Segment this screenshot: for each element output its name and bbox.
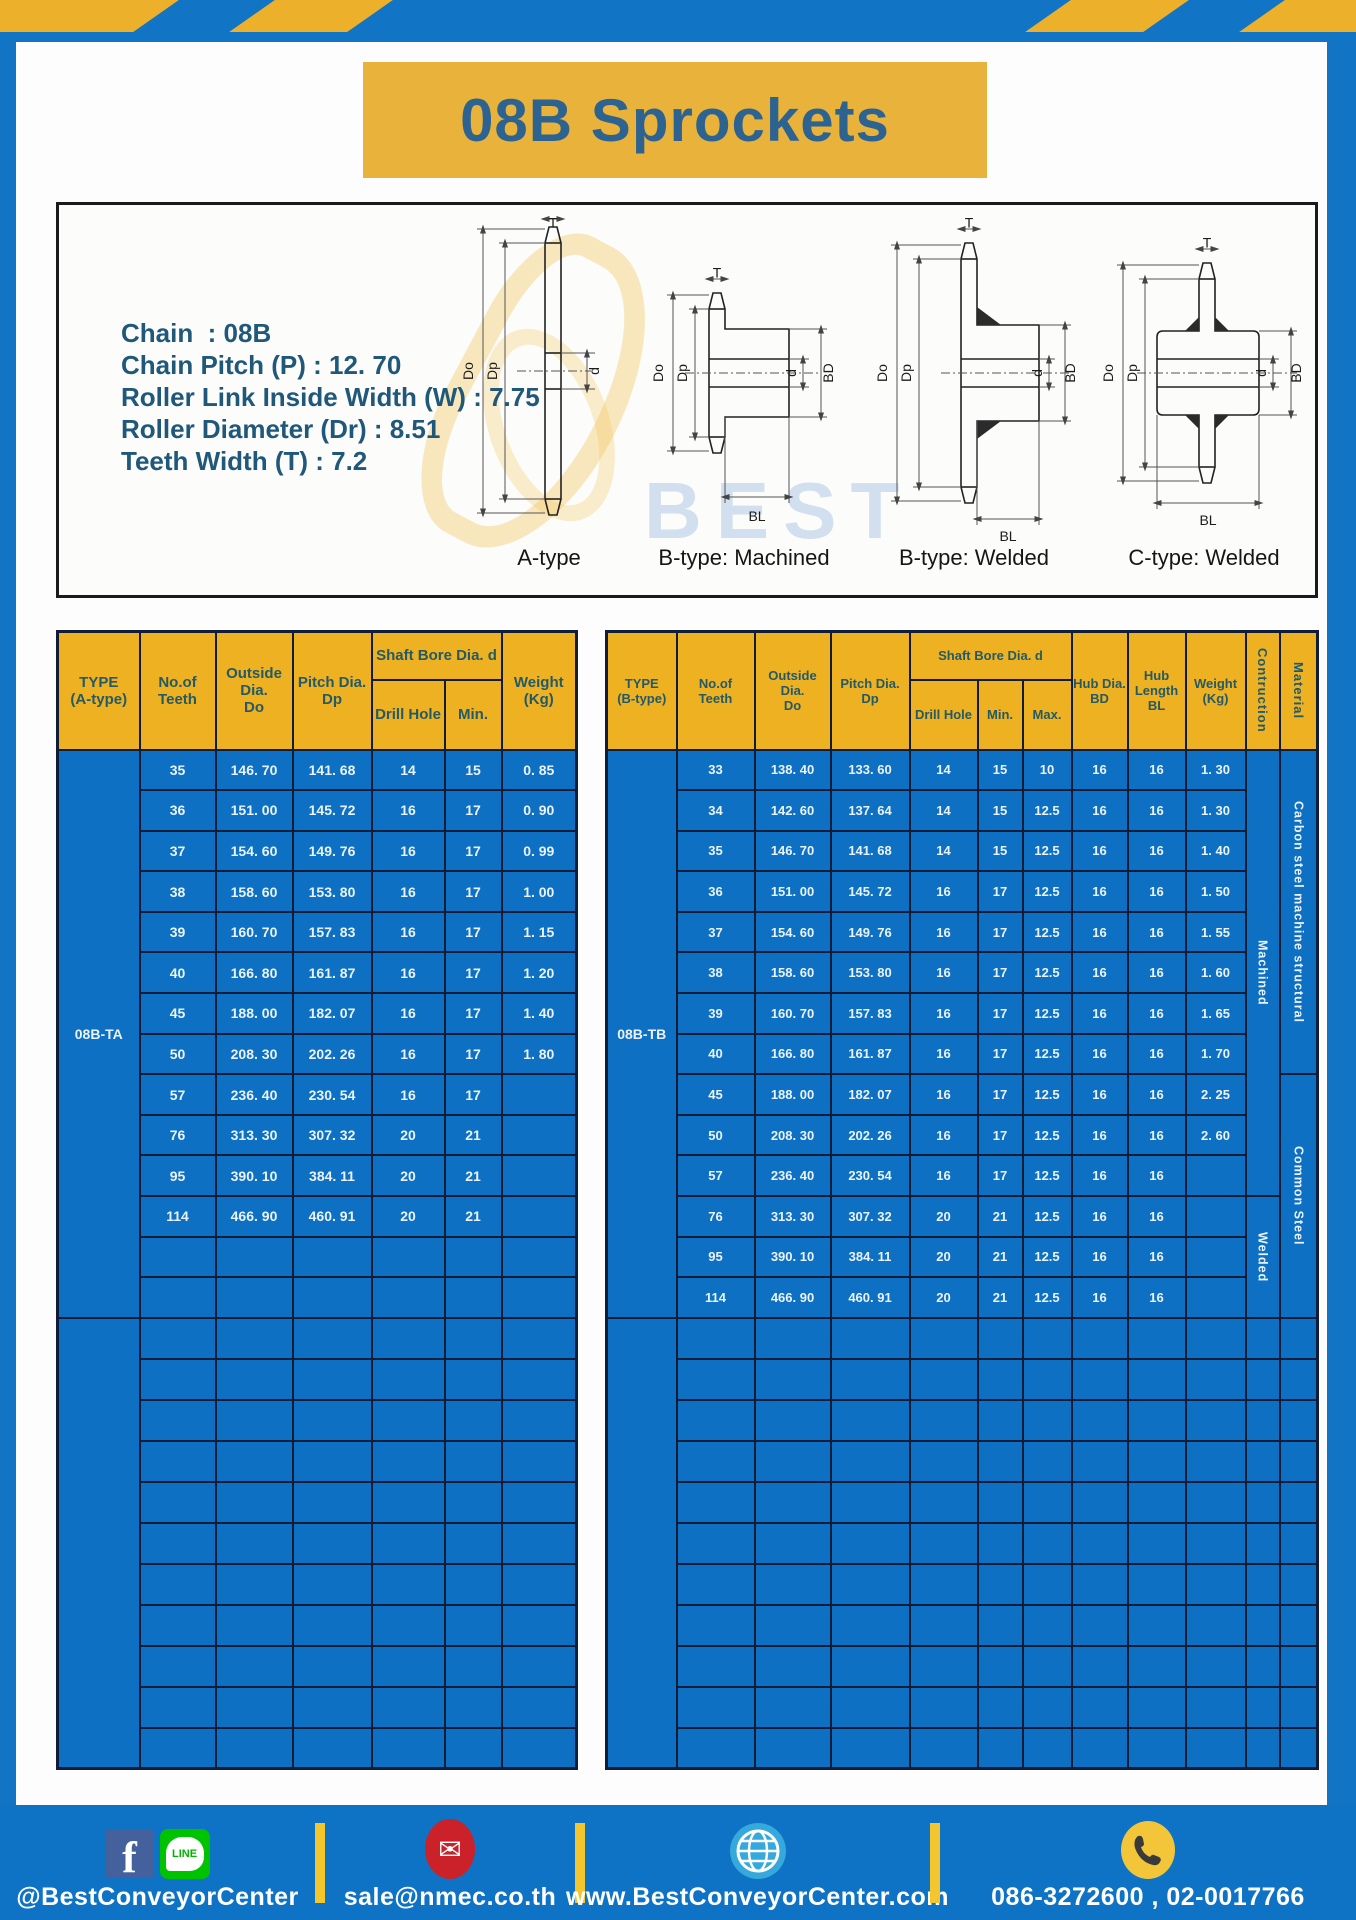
table-cell: [677, 1482, 755, 1523]
table-cell: 16: [1072, 952, 1128, 993]
table-cell: 1. 20: [502, 952, 577, 993]
table-b-row: 39160. 70157. 83161712.516161. 65: [607, 993, 1318, 1034]
table-cell: 35: [140, 750, 216, 791]
table-cell: [831, 1318, 910, 1359]
table-cell: 460. 91: [293, 1196, 372, 1237]
table-cell: [502, 1237, 577, 1278]
table-b-row: 37154. 60149. 76161712.516161. 55: [607, 912, 1318, 953]
table-cell: [978, 1605, 1023, 1646]
table-cell: [1280, 1646, 1318, 1687]
table-cell: 16: [1128, 993, 1186, 1034]
table-cell: [502, 1074, 577, 1115]
footer-separator: [930, 1823, 940, 1903]
table-cell: 21: [978, 1196, 1023, 1237]
col-header-weight: Weight (Kg): [502, 632, 577, 750]
table-cell: 158. 60: [755, 952, 831, 993]
table-cell: [502, 1277, 577, 1318]
table-cell: [502, 1687, 577, 1728]
table-b-row: 38158. 60153. 80161712.516161. 60: [607, 952, 1318, 993]
table-cell: 20: [910, 1237, 978, 1278]
table-cell: [1186, 1523, 1246, 1564]
table-08b-tb: TYPE (B-type) No.of Teeth Outside Dia. D…: [605, 630, 1319, 1770]
table-cell: [1246, 1687, 1280, 1728]
table-cell: 313. 30: [755, 1196, 831, 1237]
table-b-row: 45188. 00182. 07161712.516162. 25Common …: [607, 1074, 1318, 1115]
table-cell: 20: [910, 1277, 978, 1318]
table-cell: 17: [445, 1074, 502, 1115]
table-cell: [502, 1196, 577, 1237]
table-cell: [1186, 1646, 1246, 1687]
table-cell: [1280, 1318, 1318, 1359]
dim-label-d: d: [1253, 369, 1269, 377]
table-cell: [216, 1441, 293, 1482]
table-cell: 12.5: [1023, 993, 1072, 1034]
table-cell: 16: [1072, 1155, 1128, 1196]
table-a-empty-row: [58, 1318, 577, 1359]
table-cell: [502, 1400, 577, 1441]
table-cell: [1246, 1359, 1280, 1400]
table-cell: [1128, 1564, 1186, 1605]
table-cell: [293, 1728, 372, 1769]
table-cell: 12.5: [1023, 790, 1072, 831]
table-cell: [216, 1728, 293, 1769]
table-b-empty-row: [607, 1523, 1318, 1564]
col-header-construction: Contruction: [1246, 632, 1280, 750]
table-cell: [1023, 1564, 1072, 1605]
table-cell: 384. 11: [293, 1155, 372, 1196]
table-cell: [1128, 1605, 1186, 1646]
table-cell: 16: [910, 1074, 978, 1115]
table-cell: 12.5: [1023, 952, 1072, 993]
dim-label-bl: BL: [748, 508, 765, 524]
table-cell: 16: [372, 1034, 445, 1075]
dim-label-d: d: [783, 369, 799, 377]
table-cell: [1072, 1687, 1128, 1728]
social-handle-text[interactable]: @BestConveyorCenter: [16, 1883, 299, 1912]
table-cell: [293, 1687, 372, 1728]
table-cell: [1246, 1318, 1280, 1359]
b-type-welded-figure: T Do Dp d BD BL B-type: Welded: [869, 213, 1079, 571]
table-b-row: 40166. 80161. 87161712.516161. 70: [607, 1034, 1318, 1075]
table-cell: 0. 85: [502, 750, 577, 791]
table-cell: 21: [445, 1115, 502, 1156]
col-header-drill-hole: Drill Hole: [372, 680, 445, 750]
table-cell: [216, 1359, 293, 1400]
table-cell: [445, 1400, 502, 1441]
table-cell: [1186, 1482, 1246, 1523]
table-cell: [1072, 1359, 1128, 1400]
col-header-outside: Outside Dia. Do: [216, 632, 293, 750]
title-banner: 08B Sprockets: [363, 62, 987, 178]
table-cell: 14: [372, 750, 445, 791]
table-cell: 16: [1128, 750, 1186, 791]
table-cell: [831, 1564, 910, 1605]
table-cell: 208. 30: [755, 1115, 831, 1156]
table-b-empty-row: [607, 1318, 1318, 1359]
table-b-empty-row: [607, 1646, 1318, 1687]
table-cell: 230. 54: [293, 1074, 372, 1115]
col-header-min: Min.: [978, 680, 1023, 750]
table-cell: [978, 1482, 1023, 1523]
table-cell: [831, 1646, 910, 1687]
figure-caption: C-type: Welded: [1099, 545, 1309, 571]
table-cell: 153. 80: [293, 871, 372, 912]
table-cell: 1. 30: [1186, 790, 1246, 831]
table-cell: 45: [677, 1074, 755, 1115]
table-cell: [677, 1400, 755, 1441]
table-cell: 161. 87: [293, 952, 372, 993]
table-cell: [677, 1523, 755, 1564]
hazard-stripe: [229, 0, 393, 32]
table-cell: [140, 1564, 216, 1605]
col-header-type: TYPE (B-type): [607, 632, 677, 750]
table-cell: [831, 1728, 910, 1769]
figure-caption: B-type: Welded: [869, 545, 1079, 571]
table-cell: [910, 1359, 978, 1400]
table-cell: 15: [978, 790, 1023, 831]
table-cell: [140, 1237, 216, 1278]
table-cell: [978, 1441, 1023, 1482]
footer-contact-bar: f LINE @BestConveyorCenter ✉ sale@nmec.c…: [0, 1805, 1356, 1920]
table-cell: [502, 1482, 577, 1523]
table-cell: [372, 1728, 445, 1769]
table-cell: 12.5: [1023, 1034, 1072, 1075]
phone-icon[interactable]: [1121, 1821, 1175, 1879]
footer-website-group: www.BestConveyorCenter.com: [585, 1805, 930, 1920]
table-cell: [445, 1482, 502, 1523]
line-bubble: LINE: [166, 1837, 204, 1871]
dim-label-t: T: [549, 214, 558, 230]
footer-separator: [315, 1823, 325, 1903]
dim-label-bd: BD: [820, 363, 836, 382]
table-cell: [1128, 1728, 1186, 1769]
table-cell: 16: [910, 1034, 978, 1075]
table-cell: 145. 72: [293, 790, 372, 831]
table-cell: [1128, 1400, 1186, 1441]
col-header-pitch: Pitch Dia. Dp: [831, 632, 910, 750]
table-b-empty-row: [607, 1605, 1318, 1646]
table-cell: [831, 1441, 910, 1482]
table-cell: [1072, 1564, 1128, 1605]
dim-label-do: Do: [1100, 364, 1116, 382]
table-cell: [1023, 1441, 1072, 1482]
table-cell: 17: [445, 871, 502, 912]
table-cell: 166. 80: [755, 1034, 831, 1075]
table-cell: [216, 1400, 293, 1441]
col-header-pitch: Pitch Dia. Dp: [293, 632, 372, 750]
dim-label-dp: Dp: [898, 364, 914, 382]
table-cell: [372, 1646, 445, 1687]
table-cell: 1. 30: [1186, 750, 1246, 791]
table-cell: [1023, 1318, 1072, 1359]
table-cell: 17: [445, 1034, 502, 1075]
table-cell: 137. 64: [831, 790, 910, 831]
type-cell: 08B-TA: [58, 750, 140, 1318]
email-icon[interactable]: ✉: [425, 1819, 475, 1879]
table-cell: [1186, 1687, 1246, 1728]
table-cell: 154. 60: [216, 831, 293, 872]
table-cell: [677, 1359, 755, 1400]
table-cell: [1128, 1646, 1186, 1687]
table-cell: 460. 91: [831, 1277, 910, 1318]
table-cell: [755, 1564, 831, 1605]
dim-label-bd: BD: [1288, 363, 1304, 382]
table-cell: [755, 1523, 831, 1564]
table-cell: [910, 1728, 978, 1769]
table-cell: [910, 1646, 978, 1687]
table-cell: [502, 1318, 577, 1359]
table-cell: 16: [1128, 1277, 1186, 1318]
table-cell: [1186, 1564, 1246, 1605]
table-cell: [293, 1482, 372, 1523]
col-header-weight: Weight (Kg): [1186, 632, 1246, 750]
table-cell: [502, 1155, 577, 1196]
table-cell: [1246, 1523, 1280, 1564]
figure-caption: A-type: [459, 545, 639, 571]
table-cell: [1023, 1400, 1072, 1441]
email-text[interactable]: sale@nmec.co.th: [344, 1883, 557, 1912]
table-cell: 16: [1128, 1237, 1186, 1278]
table-cell: [1246, 1400, 1280, 1441]
table-cell: 17: [978, 1034, 1023, 1075]
table-cell: 1. 15: [502, 912, 577, 953]
table-cell: 1. 50: [1186, 871, 1246, 912]
col-header-type: TYPE (A-type): [58, 632, 140, 750]
table-cell: [1072, 1646, 1128, 1687]
table-cell: 20: [372, 1196, 445, 1237]
table-cell: [1128, 1687, 1186, 1728]
table-cell: 21: [445, 1196, 502, 1237]
table-cell: [293, 1523, 372, 1564]
table-b-empty-row: [607, 1728, 1318, 1769]
col-header-material: Material: [1280, 632, 1318, 750]
table-a-wrapper: TYPE (A-type) No.of Teeth Outside Dia. D…: [56, 630, 575, 1770]
table-cell: 17: [445, 993, 502, 1034]
col-header-drill-hole: Drill Hole: [910, 680, 978, 750]
table-cell: [755, 1728, 831, 1769]
table-cell: [140, 1359, 216, 1400]
type-cell: [607, 1318, 677, 1769]
table-b-wrapper: TYPE (B-type) No.of Teeth Outside Dia. D…: [605, 630, 1316, 1770]
table-cell: 1. 40: [502, 993, 577, 1034]
table-cell: 17: [445, 831, 502, 872]
globe-icon[interactable]: [730, 1823, 786, 1879]
table-cell: [1128, 1318, 1186, 1359]
table-cell: [1246, 1441, 1280, 1482]
table-cell: [216, 1605, 293, 1646]
table-cell: 16: [372, 1074, 445, 1115]
table-cell: [978, 1728, 1023, 1769]
table-cell: 166. 80: [216, 952, 293, 993]
table-cell: 12.5: [1023, 871, 1072, 912]
table-cell: [1246, 1646, 1280, 1687]
table-cell: [140, 1646, 216, 1687]
table-cell: 390. 10: [755, 1237, 831, 1278]
table-cell: 17: [445, 790, 502, 831]
table-cell: [445, 1237, 502, 1278]
table-cell: 12.5: [1023, 1074, 1072, 1115]
table-cell: [1280, 1523, 1318, 1564]
table-cell: 160. 70: [755, 993, 831, 1034]
table-cell: 182. 07: [831, 1074, 910, 1115]
table-cell: 21: [978, 1277, 1023, 1318]
table-cell: [1280, 1400, 1318, 1441]
table-cell: 57: [677, 1155, 755, 1196]
table-cell: 157. 83: [293, 912, 372, 953]
table-cell: 37: [677, 912, 755, 953]
table-cell: [140, 1441, 216, 1482]
phone-text[interactable]: 086-3272600 , 02-0017766: [991, 1883, 1305, 1912]
construction-cell: Welded: [1246, 1196, 1280, 1318]
table-cell: 16: [910, 1115, 978, 1156]
facebook-letter: f: [122, 1838, 137, 1878]
table-cell: 2. 60: [1186, 1115, 1246, 1156]
table-cell: [1072, 1482, 1128, 1523]
dim-label-bl: BL: [1199, 512, 1216, 528]
envelope-glyph: ✉: [438, 1833, 461, 1866]
footer-social-group: f LINE @BestConveyorCenter: [0, 1805, 315, 1920]
table-cell: 236. 40: [755, 1155, 831, 1196]
line-icon[interactable]: LINE: [160, 1829, 210, 1879]
table-b-empty-row: [607, 1482, 1318, 1523]
table-cell: 16: [1072, 750, 1128, 791]
table-cell: [372, 1441, 445, 1482]
table-cell: 182. 07: [293, 993, 372, 1034]
table-b-empty-row: [607, 1687, 1318, 1728]
table-cell: 149. 76: [293, 831, 372, 872]
table-cell: 33: [677, 750, 755, 791]
table-cell: [755, 1605, 831, 1646]
col-header-teeth: No.of Teeth: [677, 632, 755, 750]
table-cell: [1280, 1359, 1318, 1400]
table-cell: 17: [445, 952, 502, 993]
table-cell: 466. 90: [216, 1196, 293, 1237]
table-cell: [140, 1318, 216, 1359]
table-cell: 133. 60: [831, 750, 910, 791]
table-cell: 142. 60: [755, 790, 831, 831]
table-cell: [1246, 1605, 1280, 1646]
table-cell: 95: [140, 1155, 216, 1196]
table-a-row: 08B-TA35146. 70141. 6814150. 85: [58, 750, 577, 791]
table-cell: [1186, 1400, 1246, 1441]
table-cell: [1246, 1482, 1280, 1523]
table-cell: 1. 00: [502, 871, 577, 912]
table-cell: [140, 1728, 216, 1769]
col-header-teeth: No.of Teeth: [140, 632, 216, 750]
table-cell: 1. 40: [1186, 831, 1246, 872]
col-header-hub-length: Hub Length BL: [1128, 632, 1186, 750]
table-cell: 154. 60: [755, 912, 831, 953]
table-cell: 16: [1128, 1115, 1186, 1156]
table-cell: [1280, 1564, 1318, 1605]
table-cell: [1128, 1523, 1186, 1564]
table-cell: [978, 1564, 1023, 1605]
table-cell: 1. 70: [1186, 1034, 1246, 1075]
table-cell: 141. 68: [293, 750, 372, 791]
table-cell: [1023, 1687, 1072, 1728]
table-cell: 160. 70: [216, 912, 293, 953]
table-cell: 16: [372, 871, 445, 912]
table-cell: 40: [677, 1034, 755, 1075]
table-cell: [1186, 1728, 1246, 1769]
table-cell: 384. 11: [831, 1237, 910, 1278]
table-cell: 16: [372, 912, 445, 953]
table-cell: 17: [978, 993, 1023, 1034]
table-cell: 466. 90: [755, 1277, 831, 1318]
spec-line: Roller Link Inside Width (W) : 7.75: [121, 381, 540, 413]
table-cell: 114: [677, 1277, 755, 1318]
table-cell: 16: [1128, 1034, 1186, 1075]
table-cell: [1280, 1482, 1318, 1523]
table-cell: 34: [677, 790, 755, 831]
table-b-row: 08B-TB33138. 40133. 6014151016161. 30Mac…: [607, 750, 1318, 791]
table-cell: [1072, 1400, 1128, 1441]
table-cell: [140, 1482, 216, 1523]
table-cell: 208. 30: [216, 1034, 293, 1075]
table-cell: 16: [1072, 912, 1128, 953]
table-cell: [372, 1564, 445, 1605]
table-cell: [445, 1687, 502, 1728]
table-cell: [910, 1400, 978, 1441]
table-cell: 16: [1128, 1074, 1186, 1115]
table-b-row: 76313. 30307. 32202112.51616Welded: [607, 1196, 1318, 1237]
table-b-row: 50208. 30202. 26161712.516162. 60: [607, 1115, 1318, 1156]
table-cell: 17: [978, 1155, 1023, 1196]
table-cell: 12.5: [1023, 1196, 1072, 1237]
table-cell: [1072, 1728, 1128, 1769]
website-text[interactable]: www.BestConveyorCenter.com: [566, 1883, 949, 1912]
table-cell: 16: [910, 952, 978, 993]
table-cell: 16: [372, 993, 445, 1034]
table-cell: [140, 1277, 216, 1318]
table-cell: 158. 60: [216, 871, 293, 912]
spec-line: Roller Diameter (Dr) : 8.51: [121, 413, 540, 445]
table-cell: 20: [910, 1196, 978, 1237]
facebook-icon[interactable]: f: [106, 1830, 154, 1878]
table-cell: 16: [910, 993, 978, 1034]
table-cell: [372, 1277, 445, 1318]
table-cell: [140, 1523, 216, 1564]
table-cell: 15: [445, 750, 502, 791]
table-cell: [1128, 1359, 1186, 1400]
dim-label-dp: Dp: [674, 364, 690, 382]
dim-label-t: T: [965, 214, 974, 230]
table-cell: [1280, 1441, 1318, 1482]
table-cell: 57: [140, 1074, 216, 1115]
table-cell: [910, 1482, 978, 1523]
table-cell: 16: [1072, 871, 1128, 912]
table-cell: 16: [1072, 1074, 1128, 1115]
table-cell: [755, 1687, 831, 1728]
table-cell: 390. 10: [216, 1155, 293, 1196]
table-cell: 38: [140, 871, 216, 912]
table-cell: [1023, 1728, 1072, 1769]
table-cell: 157. 83: [831, 993, 910, 1034]
chain-specs: Chain : 08BChain Pitch (P) : 12. 70Rolle…: [121, 317, 540, 477]
left-frame-border: [0, 42, 16, 1805]
table-cell: 0. 90: [502, 790, 577, 831]
table-cell: [1246, 1564, 1280, 1605]
table-cell: 16: [1072, 993, 1128, 1034]
table-cell: 151. 00: [216, 790, 293, 831]
table-cell: 35: [677, 831, 755, 872]
page-title: 08B Sprockets: [460, 86, 890, 155]
table-cell: 16: [910, 1155, 978, 1196]
table-cell: 151. 00: [755, 871, 831, 912]
table-cell: [445, 1646, 502, 1687]
table-cell: [910, 1441, 978, 1482]
table-cell: [1072, 1523, 1128, 1564]
